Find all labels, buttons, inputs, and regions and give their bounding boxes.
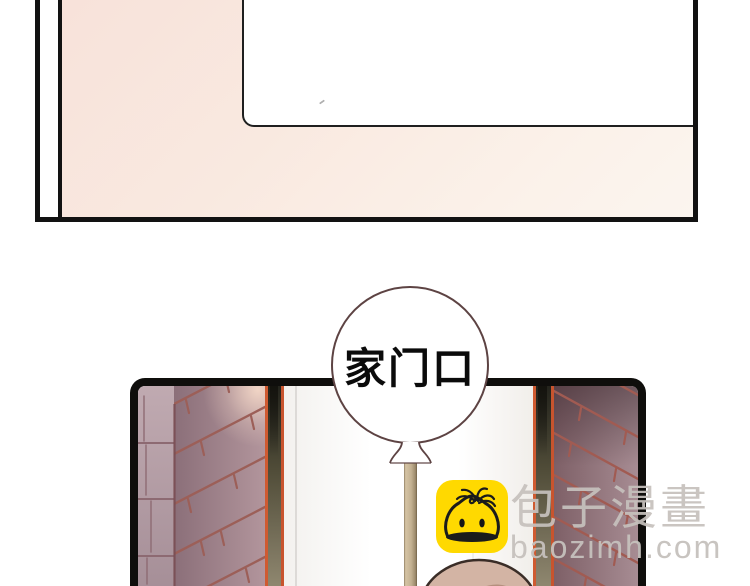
watermark-site: baozimh.com <box>510 531 722 563</box>
balloon-stick <box>404 458 417 586</box>
balloon-knot <box>389 441 432 464</box>
watermark-brand: 包子漫畫 <box>510 484 710 531</box>
top-panel-frame <box>35 0 698 222</box>
balloon-label: 家门口 <box>344 335 476 396</box>
baozi-bun-icon <box>435 479 509 554</box>
left-brick-wall <box>138 374 265 586</box>
comic-page: 家门口 包子漫畫 baozimh.com <box>0 0 750 586</box>
door-frame-left <box>265 386 284 586</box>
sign-balloon: 家门口 <box>331 286 489 444</box>
